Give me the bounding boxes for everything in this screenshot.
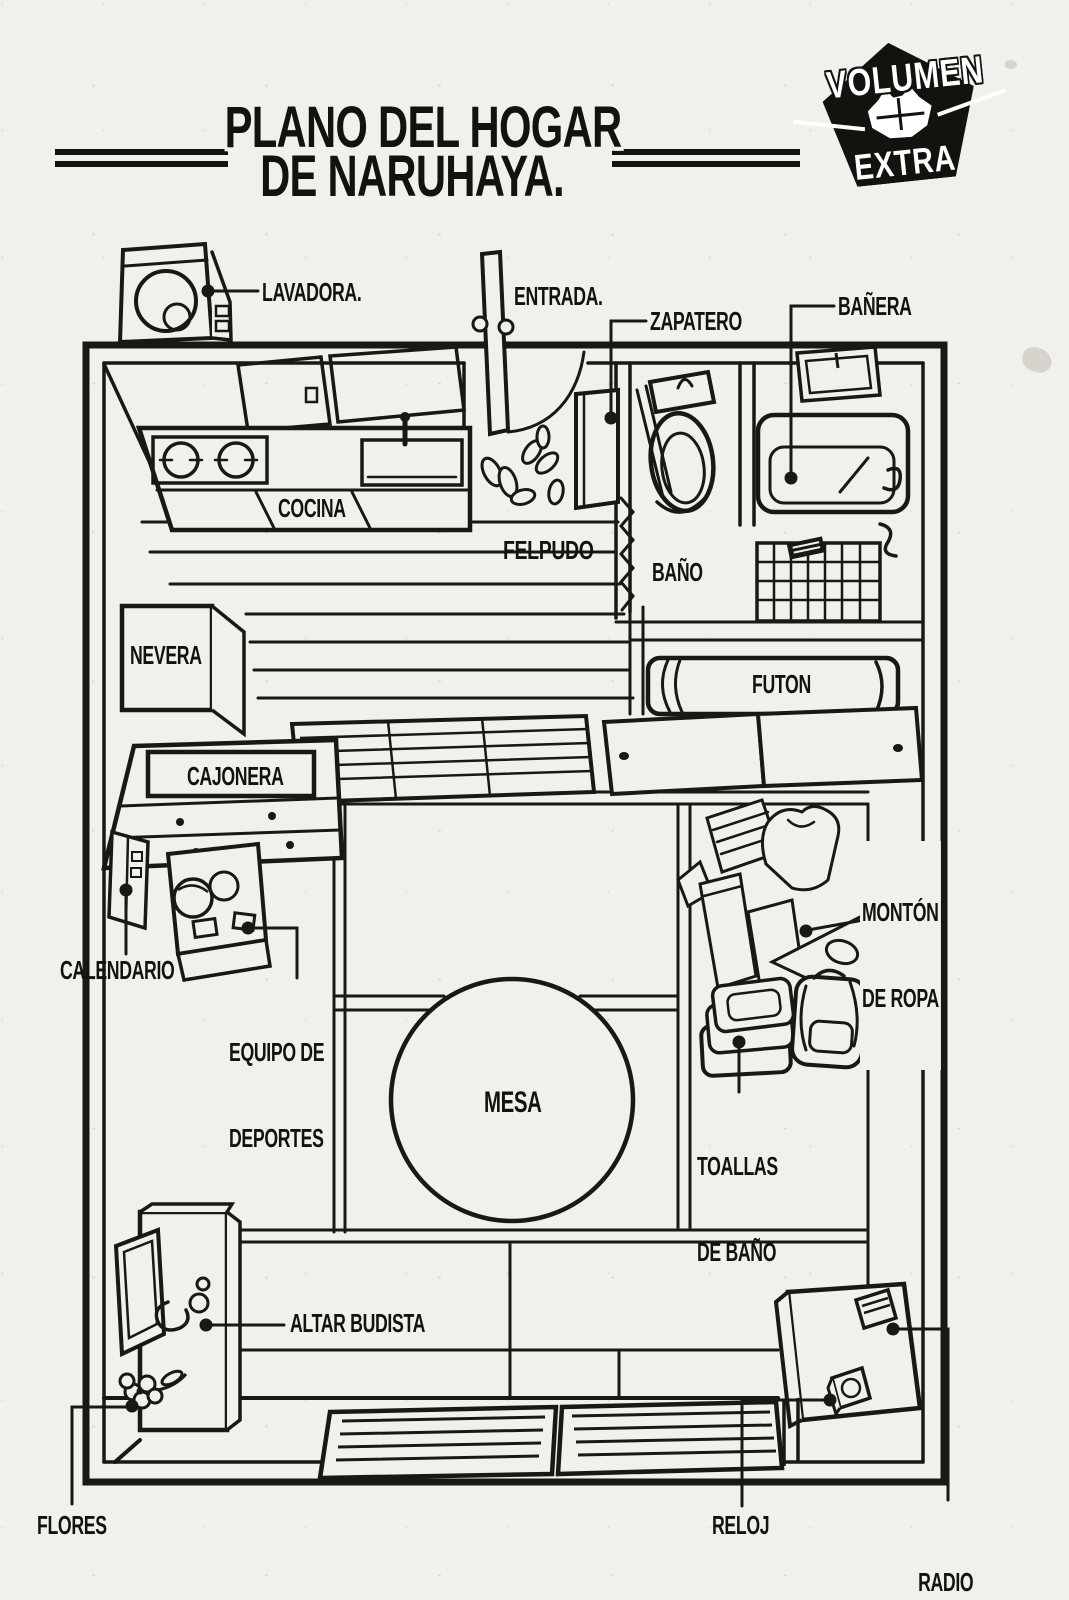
- label-entrada: ENTRADA.: [514, 282, 603, 311]
- sports-box-drawing: [168, 844, 270, 980]
- label-radio-pequena: RADIO PEQUEÑA.: [893, 1511, 998, 1600]
- label-felpudo: FELPUDO: [503, 536, 594, 565]
- shoes-drawing: [478, 426, 565, 507]
- label-cajonera: CAJONERA: [187, 762, 284, 791]
- label-bano: BAÑO: [652, 558, 703, 587]
- toilet-drawing: [645, 372, 718, 514]
- label-nevera: NEVERA: [130, 641, 202, 670]
- calendar-drawing: [109, 832, 148, 928]
- label-reloj: RELOJ: [712, 1511, 769, 1540]
- label-cocina: COCINA: [278, 494, 346, 523]
- label-zapatero: ZAPATERO: [650, 307, 742, 336]
- label-futon: FUTON: [752, 670, 811, 699]
- bathtub-drawing: [758, 415, 908, 556]
- label-equipo-de-deportes: EQUIPO DE DEPORTES: [229, 981, 324, 1210]
- volume-extra-badge: VOLUMEN EXTRA: [813, 28, 988, 194]
- label-monton-de-ropa: MONTÓN DE ROPA: [860, 841, 941, 1070]
- kitchen-window-drawing: [238, 347, 464, 431]
- label-altar-budista: ALTAR BUDISTA: [290, 1309, 425, 1338]
- label-flores: FLORES: [37, 1511, 107, 1540]
- bathroom-window-drawing: [797, 347, 880, 401]
- label-banera: BAÑERA: [838, 292, 912, 321]
- label-lavadora: LAVADORA.: [262, 278, 361, 307]
- washing-machine-drawing: [120, 244, 231, 342]
- manga-extra-page: PLANO DEL HOGAR DE NARUHAYA. VOLUMEN EXT…: [0, 0, 1069, 1600]
- page-title-line2: DE NARUHAYA.: [260, 148, 564, 206]
- label-calendario: CALENDARIO: [60, 956, 174, 985]
- fridge-drawing: [122, 606, 244, 734]
- floorplan-drawing: [0, 0, 1069, 1600]
- backpack-drawing: [791, 970, 867, 1068]
- veranda-drawing: [320, 1398, 798, 1478]
- towels-drawing: [701, 977, 795, 1076]
- label-toallas-de-bano: TOALLAS DE BAÑO: [697, 1095, 778, 1324]
- closet-doors-drawing: [604, 708, 922, 794]
- bathroom-tiles-drawing: [757, 536, 880, 621]
- label-mesa: MESA: [484, 1086, 542, 1119]
